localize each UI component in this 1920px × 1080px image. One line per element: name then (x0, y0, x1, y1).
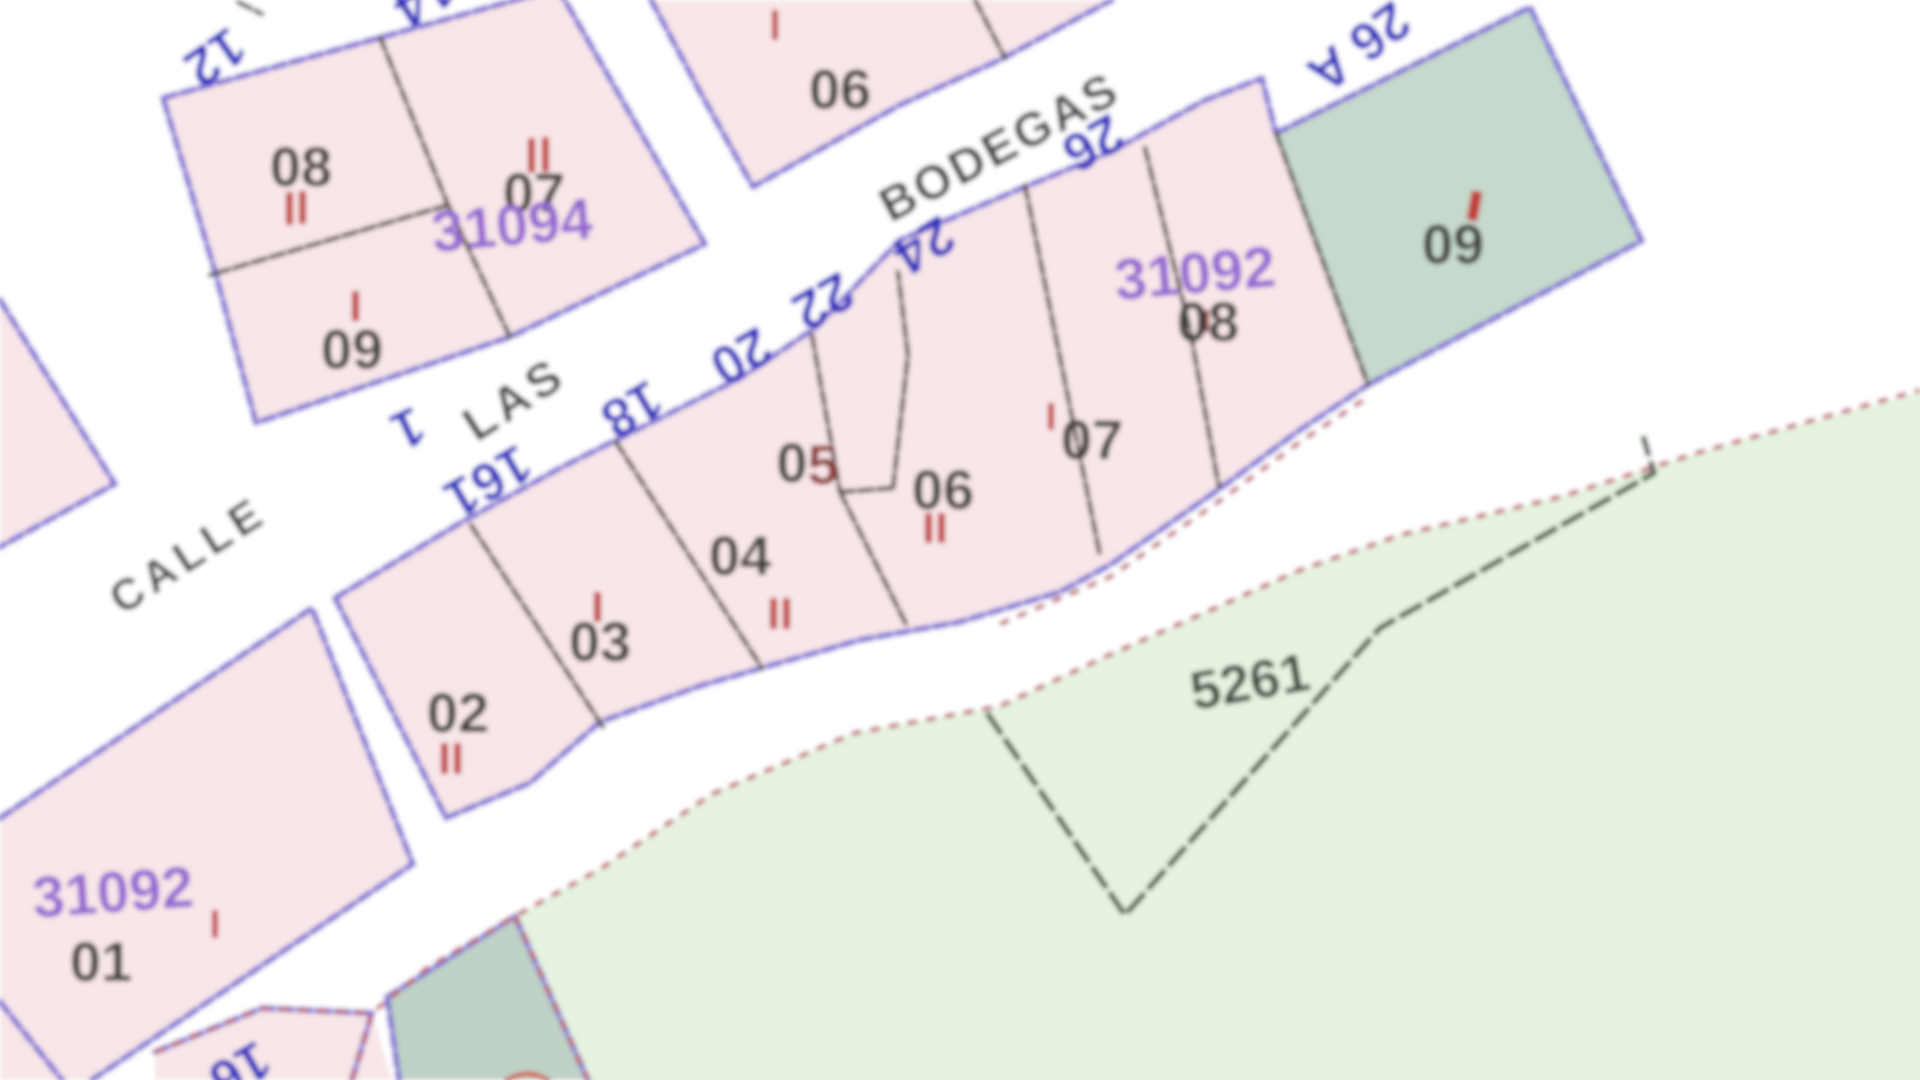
svg-text:0: 0 (776, 431, 807, 494)
svg-text:08: 08 (270, 135, 332, 198)
svg-text:03: 03 (569, 610, 631, 673)
svg-text:02: 02 (427, 681, 489, 744)
svg-text:60: 60 (1422, 213, 1484, 276)
svg-text:06: 06 (912, 458, 974, 521)
svg-text:07: 07 (1061, 408, 1123, 471)
svg-text:5: 5 (807, 433, 838, 496)
svg-text:60: 60 (321, 318, 383, 381)
svg-text:04: 04 (709, 524, 771, 587)
svg-text:31092: 31092 (30, 854, 195, 930)
svg-text:90: 90 (809, 58, 871, 121)
svg-text:01: 01 (70, 930, 132, 993)
